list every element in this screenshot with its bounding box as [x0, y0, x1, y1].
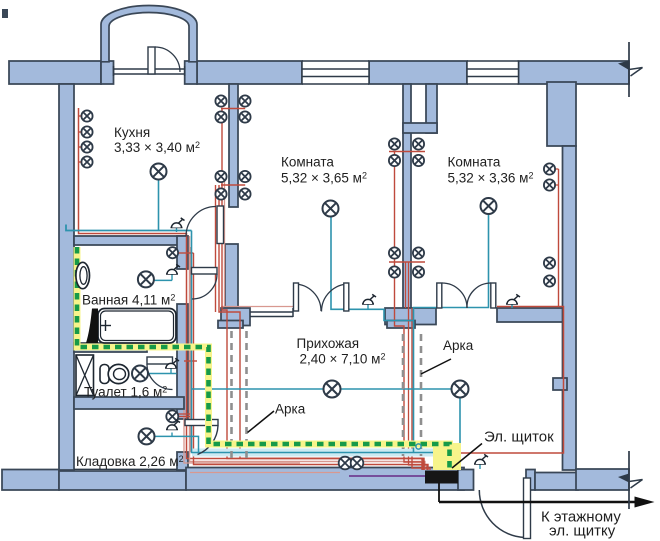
svg-text:Комната: Комната — [448, 155, 501, 170]
svg-text:5,32 × 3,65 м2: 5,32 × 3,65 м2 — [281, 171, 367, 186]
svg-text:2,40 × 7,10 м2: 2,40 × 7,10 м2 — [300, 352, 386, 367]
svg-text:Эл. щиток: Эл. щиток — [484, 429, 554, 446]
svg-text:Арка: Арка — [275, 402, 306, 417]
svg-text:Туалет 1,6 м2: Туалет 1,6 м2 — [84, 385, 167, 400]
svg-text:3,33 × 3,40 м2: 3,33 × 3,40 м2 — [114, 140, 200, 155]
svg-text:5,32 × 3,36 м2: 5,32 × 3,36 м2 — [448, 171, 534, 186]
svg-text:Ванная 4,11 м2: Ванная 4,11 м2 — [82, 293, 175, 308]
svg-text:Прихожая: Прихожая — [297, 336, 360, 351]
svg-text:эл. щитку: эл. щитку — [549, 523, 616, 540]
svg-text:Арка: Арка — [443, 338, 474, 353]
svg-text:Кухня: Кухня — [114, 125, 150, 140]
svg-text:Комната: Комната — [281, 155, 334, 170]
svg-text:Кладовка 2,26 м2: Кладовка 2,26 м2 — [76, 454, 184, 469]
